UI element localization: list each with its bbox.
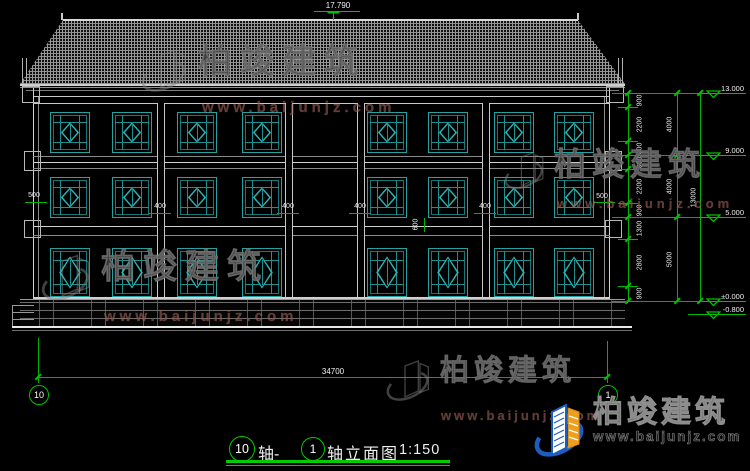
window: [367, 177, 407, 218]
watermark-left: 柏竣建筑 www.baijunjz.com: [40, 250, 297, 325]
ridge-dim-line: [314, 11, 360, 12]
watermark-logo-icon: [140, 45, 192, 97]
title-axis-bubble-end: 1: [301, 437, 325, 461]
axis-bubble-left-number: 10: [34, 390, 44, 400]
entry-step: [12, 319, 34, 320]
watermark-url: www.baijunjz.com: [104, 308, 297, 325]
watermark-top: 柏竣建筑 www.baijunjz.com: [140, 45, 395, 116]
dim-tick-line: [424, 218, 425, 232]
axis-bubble-left: 10: [29, 385, 49, 405]
dim-segment-label: 2200: [636, 112, 645, 138]
watermark-url: www.baijunjz.com: [202, 99, 395, 116]
pilaster-width-label: 400: [148, 202, 172, 211]
watermark-right: 柏竣建筑 www.baijunjz.com: [503, 148, 733, 211]
title-underline-2: [226, 465, 450, 466]
dim-tick-line: [149, 213, 171, 214]
watermark-logo-icon: [503, 148, 549, 194]
entry-step: [12, 305, 34, 306]
dim-subtotal-label: 5000: [666, 247, 675, 273]
wall-edge-left: [33, 88, 34, 326]
gable-trim: [622, 58, 623, 84]
gable-trim: [22, 58, 23, 84]
brand-logo: 柏竣建筑 www.baijunjz.com: [533, 398, 742, 462]
ground-line-2: [12, 330, 632, 331]
floor-band: [33, 235, 610, 236]
pilaster-width-label: 400: [348, 202, 372, 211]
dim-tick-line: [277, 213, 299, 214]
ridge-leader: [333, 12, 334, 20]
cornice-bracket: [605, 220, 622, 238]
dim-subtotal-label: 4000: [666, 112, 675, 138]
left-offset-label: 500: [22, 191, 46, 200]
pilaster: [482, 103, 490, 297]
watermark-brand: 柏竣建筑: [101, 250, 269, 286]
ground-line: [12, 326, 632, 328]
watermark-logo-icon: [385, 356, 435, 406]
dim-tick-line: [349, 213, 371, 214]
cad-elevation-drawing: 9002200900900220090013002800900400040005…: [0, 0, 750, 471]
dim-segment-label: 2800: [636, 250, 645, 276]
window: [367, 248, 407, 297]
pilaster-width-label: 400: [473, 202, 497, 211]
pilaster-width-label: 400: [276, 202, 300, 211]
roof-ridge-line: [63, 19, 578, 21]
window: [428, 177, 468, 218]
pilaster: [357, 103, 365, 297]
title-axis-bubble-start: 10: [229, 436, 255, 462]
gable-trim: [618, 58, 619, 84]
ridge-level-label: 17.790: [316, 1, 360, 10]
brand-logo-name: 柏竣建筑: [593, 398, 742, 428]
window: [242, 112, 282, 153]
window: [554, 248, 594, 297]
title-underline: [226, 460, 450, 463]
window: [177, 177, 217, 218]
roof-ridge-end: [577, 13, 579, 20]
title-axis-end-number: 1: [310, 442, 317, 456]
watermark-brand: 柏竣建筑: [440, 356, 576, 386]
dim-segment-label: 1300: [636, 216, 645, 242]
cornice-bracket: [22, 86, 40, 103]
floor-band: [33, 226, 610, 227]
title-axis-start-number: 10: [235, 442, 249, 456]
title-scale: 1:150: [399, 442, 440, 458]
cornice-bracket: [24, 220, 41, 238]
window: [428, 112, 468, 153]
sill-height-label: 600: [412, 213, 421, 237]
window: [50, 112, 90, 153]
window: [112, 177, 152, 218]
level-label: 13.000: [700, 84, 744, 93]
level-label: -0.800: [700, 305, 744, 314]
window: [242, 177, 282, 218]
dim-tick-line: [25, 202, 47, 203]
window: [112, 112, 152, 153]
window: [50, 177, 90, 218]
brand-logo-url: www.baijunjz.com: [593, 429, 742, 444]
window: [367, 112, 407, 153]
window: [428, 248, 468, 297]
entry-step: [12, 312, 34, 313]
dim-segment-label: 900: [636, 88, 645, 114]
watermark-url: www.baijunjz.com: [557, 196, 733, 211]
roof-ridge-end: [61, 13, 63, 20]
gable-trim: [26, 58, 27, 84]
window: [177, 112, 217, 153]
cornice-bracket: [24, 151, 41, 171]
overall-width-label: 34700: [310, 367, 356, 376]
dim-tick-line: [474, 213, 496, 214]
dim-segment-label: 900: [636, 281, 645, 307]
level-label: ±0.000: [700, 292, 744, 301]
watermark-logo-icon: [40, 250, 96, 306]
watermark-brand: 柏竣建筑: [198, 45, 366, 81]
window: [494, 112, 534, 153]
entry-step-edge: [12, 305, 13, 326]
cornice-bracket: [606, 86, 624, 103]
watermark-brand: 柏竣建筑: [554, 148, 706, 182]
brand-logo-icon: [533, 398, 589, 462]
window: [494, 248, 534, 297]
